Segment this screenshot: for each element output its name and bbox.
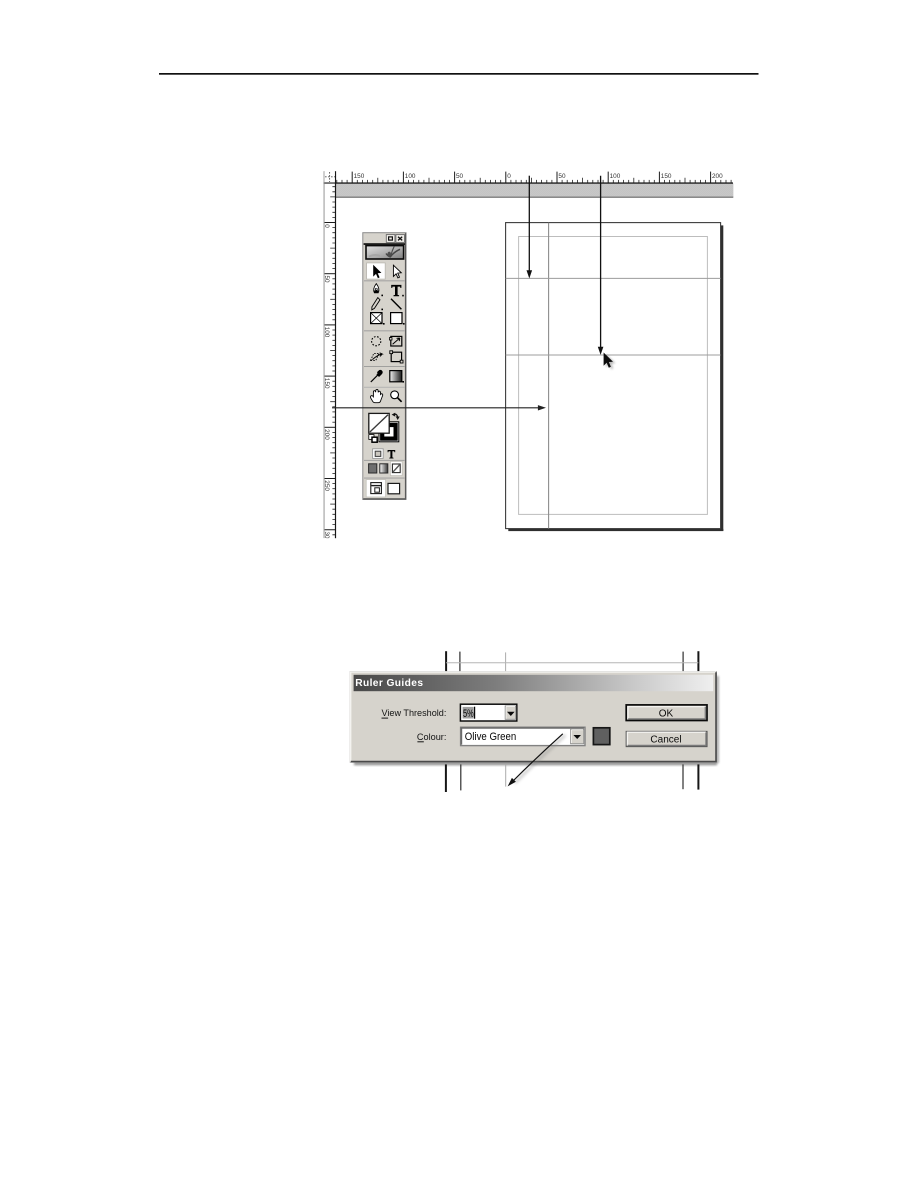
svg-text:50: 50 <box>323 276 330 284</box>
svg-text:50: 50 <box>456 173 464 180</box>
svg-text:150: 150 <box>323 378 330 389</box>
svg-text:Colour:: Colour: <box>417 732 447 743</box>
svg-text:300: 300 <box>323 532 330 543</box>
svg-text:Cancel: Cancel <box>650 735 681 746</box>
svg-text:Olive Green: Olive Green <box>465 731 517 743</box>
svg-text:Ruler Guides: Ruler Guides <box>355 678 423 689</box>
svg-text:200: 200 <box>323 429 330 440</box>
svg-text:150: 150 <box>661 173 672 180</box>
svg-text:0: 0 <box>507 173 511 180</box>
svg-text:0: 0 <box>323 224 330 228</box>
svg-text:100: 100 <box>610 173 621 180</box>
svg-text:250: 250 <box>323 480 330 491</box>
svg-text:100: 100 <box>323 327 330 338</box>
svg-text:150: 150 <box>354 173 365 180</box>
svg-text:200: 200 <box>712 173 723 180</box>
svg-text:50: 50 <box>558 173 566 180</box>
svg-text:100: 100 <box>405 173 416 180</box>
svg-text:OK: OK <box>659 708 674 719</box>
svg-text:5%: 5% <box>463 708 474 720</box>
svg-text:View Threshold:: View Threshold: <box>382 708 447 719</box>
